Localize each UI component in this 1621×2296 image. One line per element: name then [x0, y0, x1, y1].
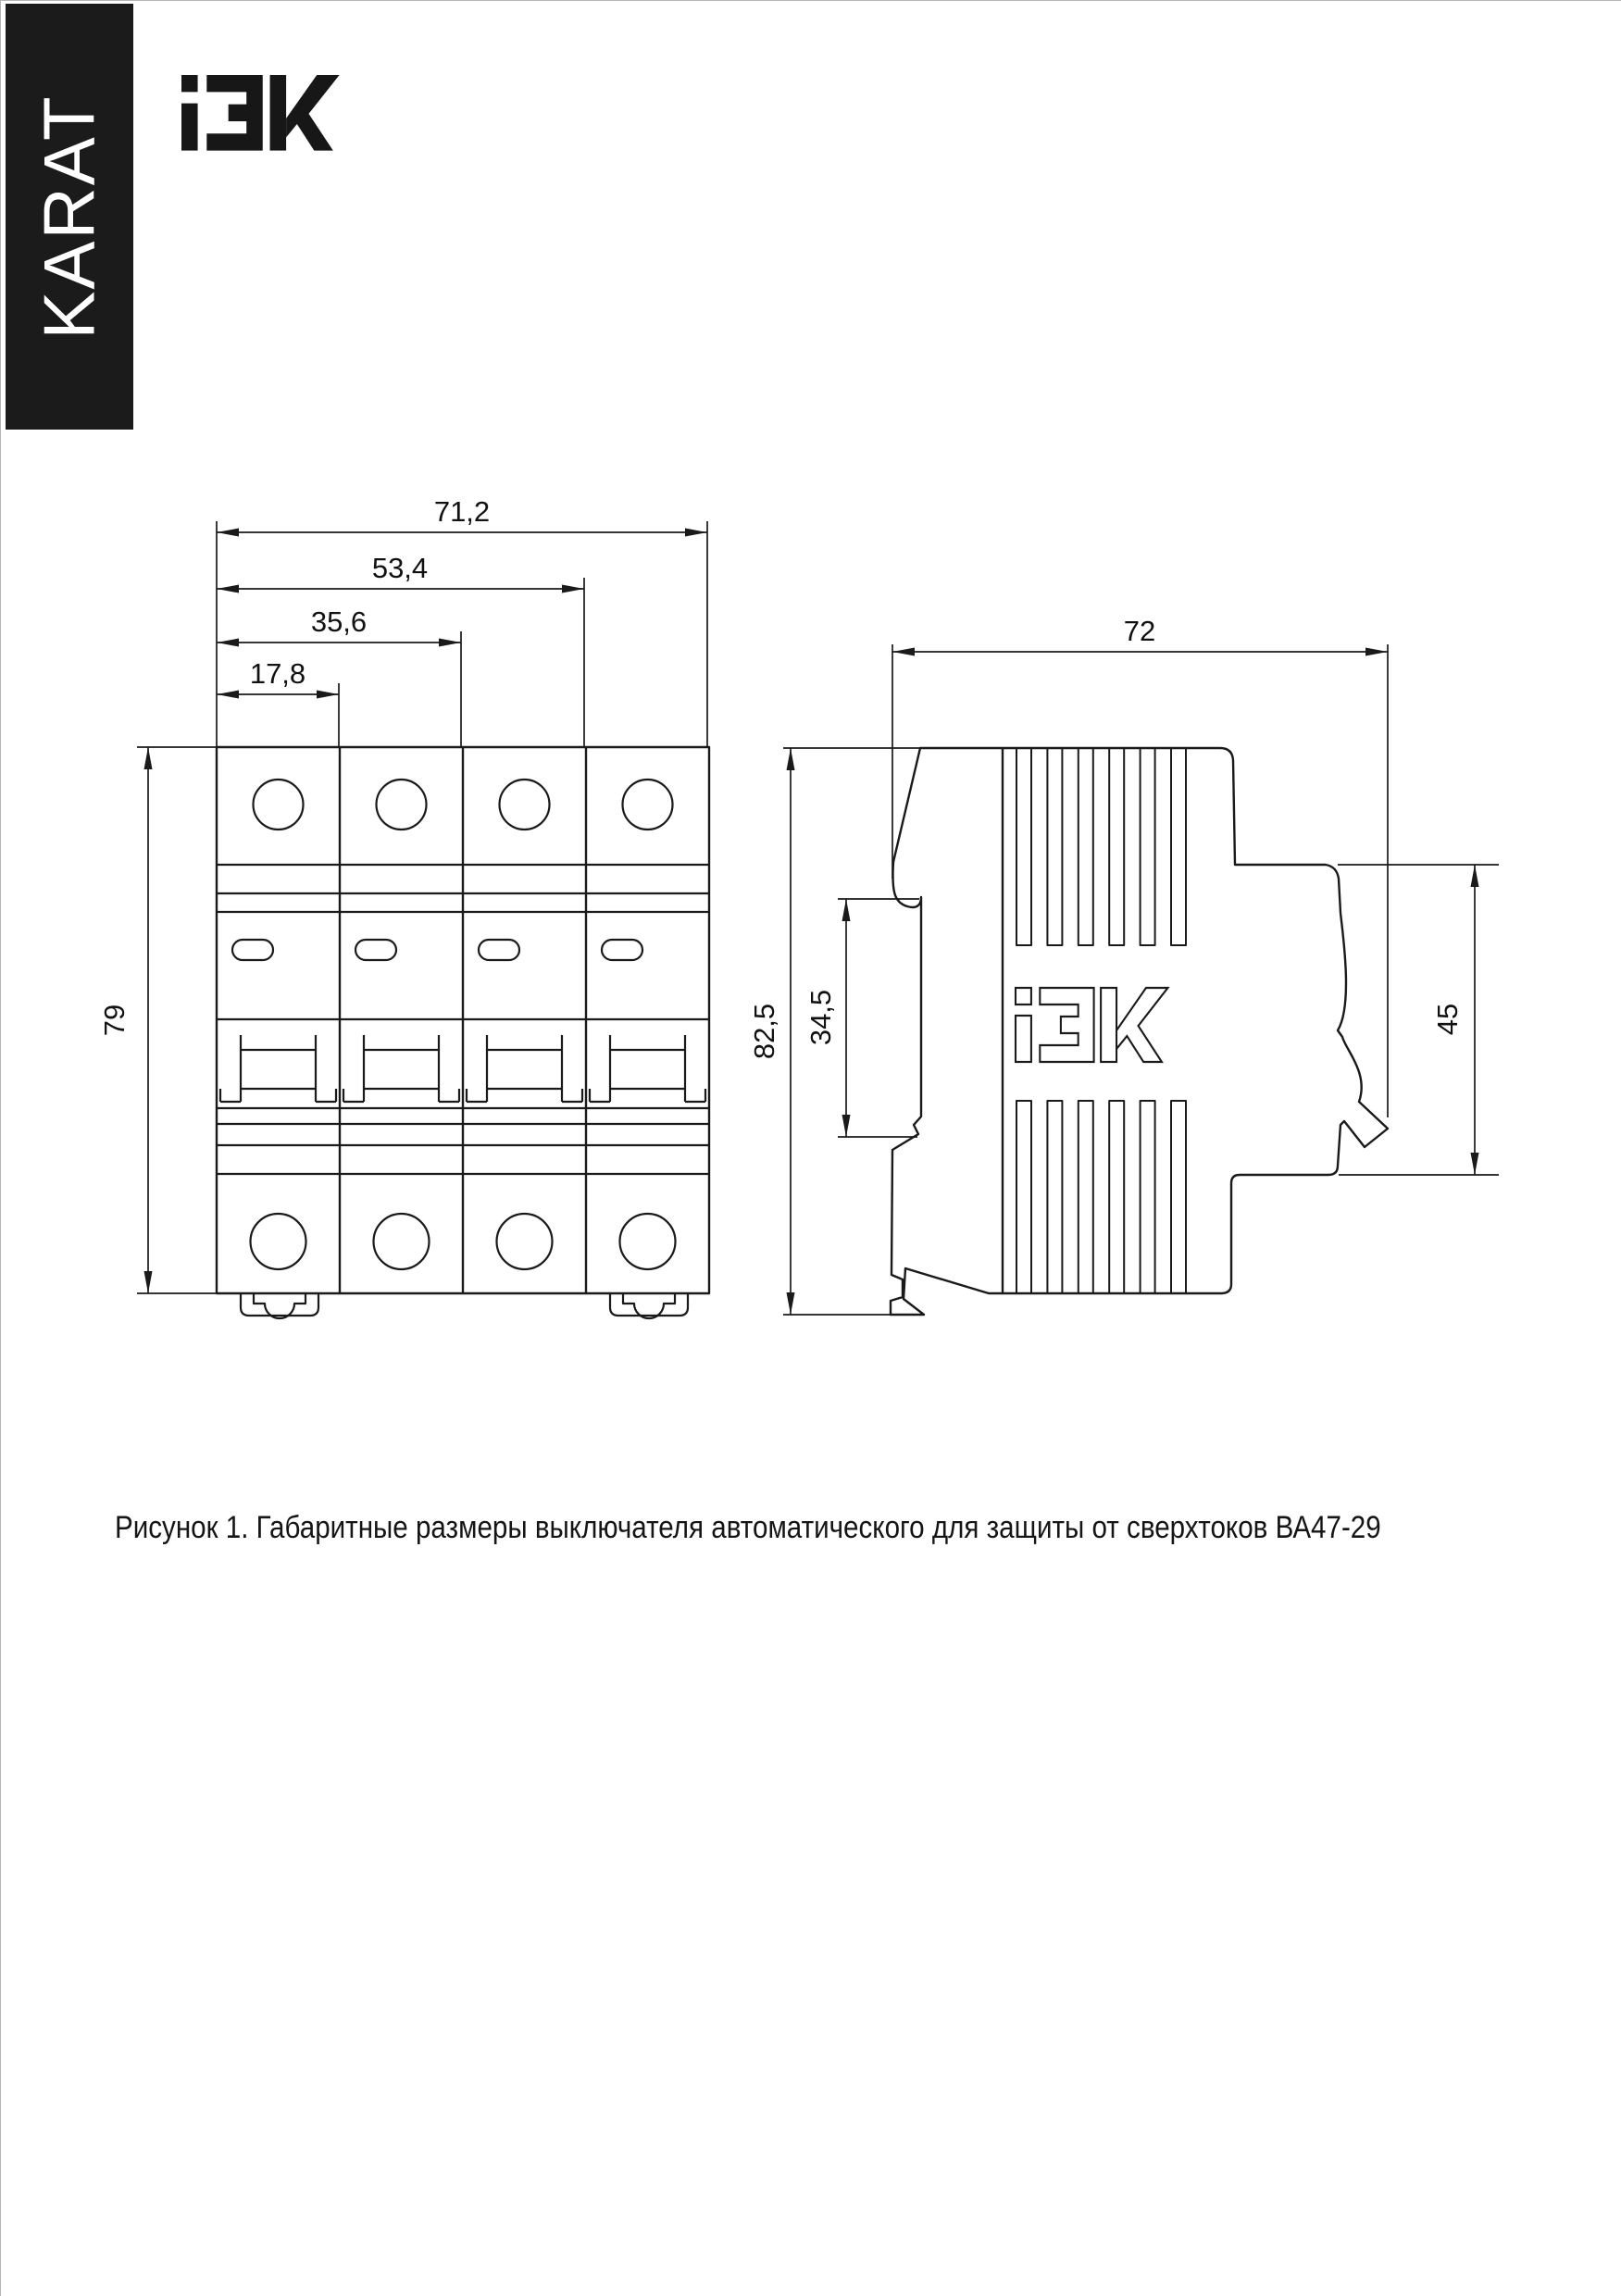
datasheet-page: KARAT	[0, 0, 1621, 2296]
dimension-lines	[137, 521, 1499, 1315]
dim-side-terminal-recess-height: 45	[1431, 1004, 1464, 1035]
dim-front-width-two-modules: 35,6	[311, 605, 367, 638]
figure-caption: Рисунок 1. Габаритные размеры выключател…	[115, 1510, 1381, 1546]
dim-side-height: 82,5	[748, 1004, 780, 1059]
front-view	[217, 747, 709, 1318]
side-iek-logo-emboss	[1016, 988, 1168, 1062]
dim-front-total-width: 71,2	[434, 495, 490, 528]
dimension-labels: 71,2 53,4 35,6 17,8 79 72 82,5 34,5 45	[98, 495, 1464, 1059]
side-ribs-top	[1016, 749, 1186, 945]
front-label-windows	[232, 940, 642, 960]
dim-side-din-recess-height: 34,5	[804, 990, 837, 1045]
dim-side-depth: 72	[1124, 615, 1155, 647]
dim-front-height: 79	[98, 1004, 131, 1036]
side-ribs-bottom	[1016, 1101, 1186, 1292]
iek-logo	[181, 75, 340, 151]
front-din-clips	[241, 1293, 688, 1318]
dimension-drawing: 71,2 53,4 35,6 17,8 79 72 82,5 34,5 45	[1, 1, 1621, 2296]
dim-front-module-width: 17,8	[250, 657, 305, 690]
dim-front-width-three-modules: 53,4	[372, 552, 428, 584]
dimension-arrows	[144, 529, 1479, 1316]
